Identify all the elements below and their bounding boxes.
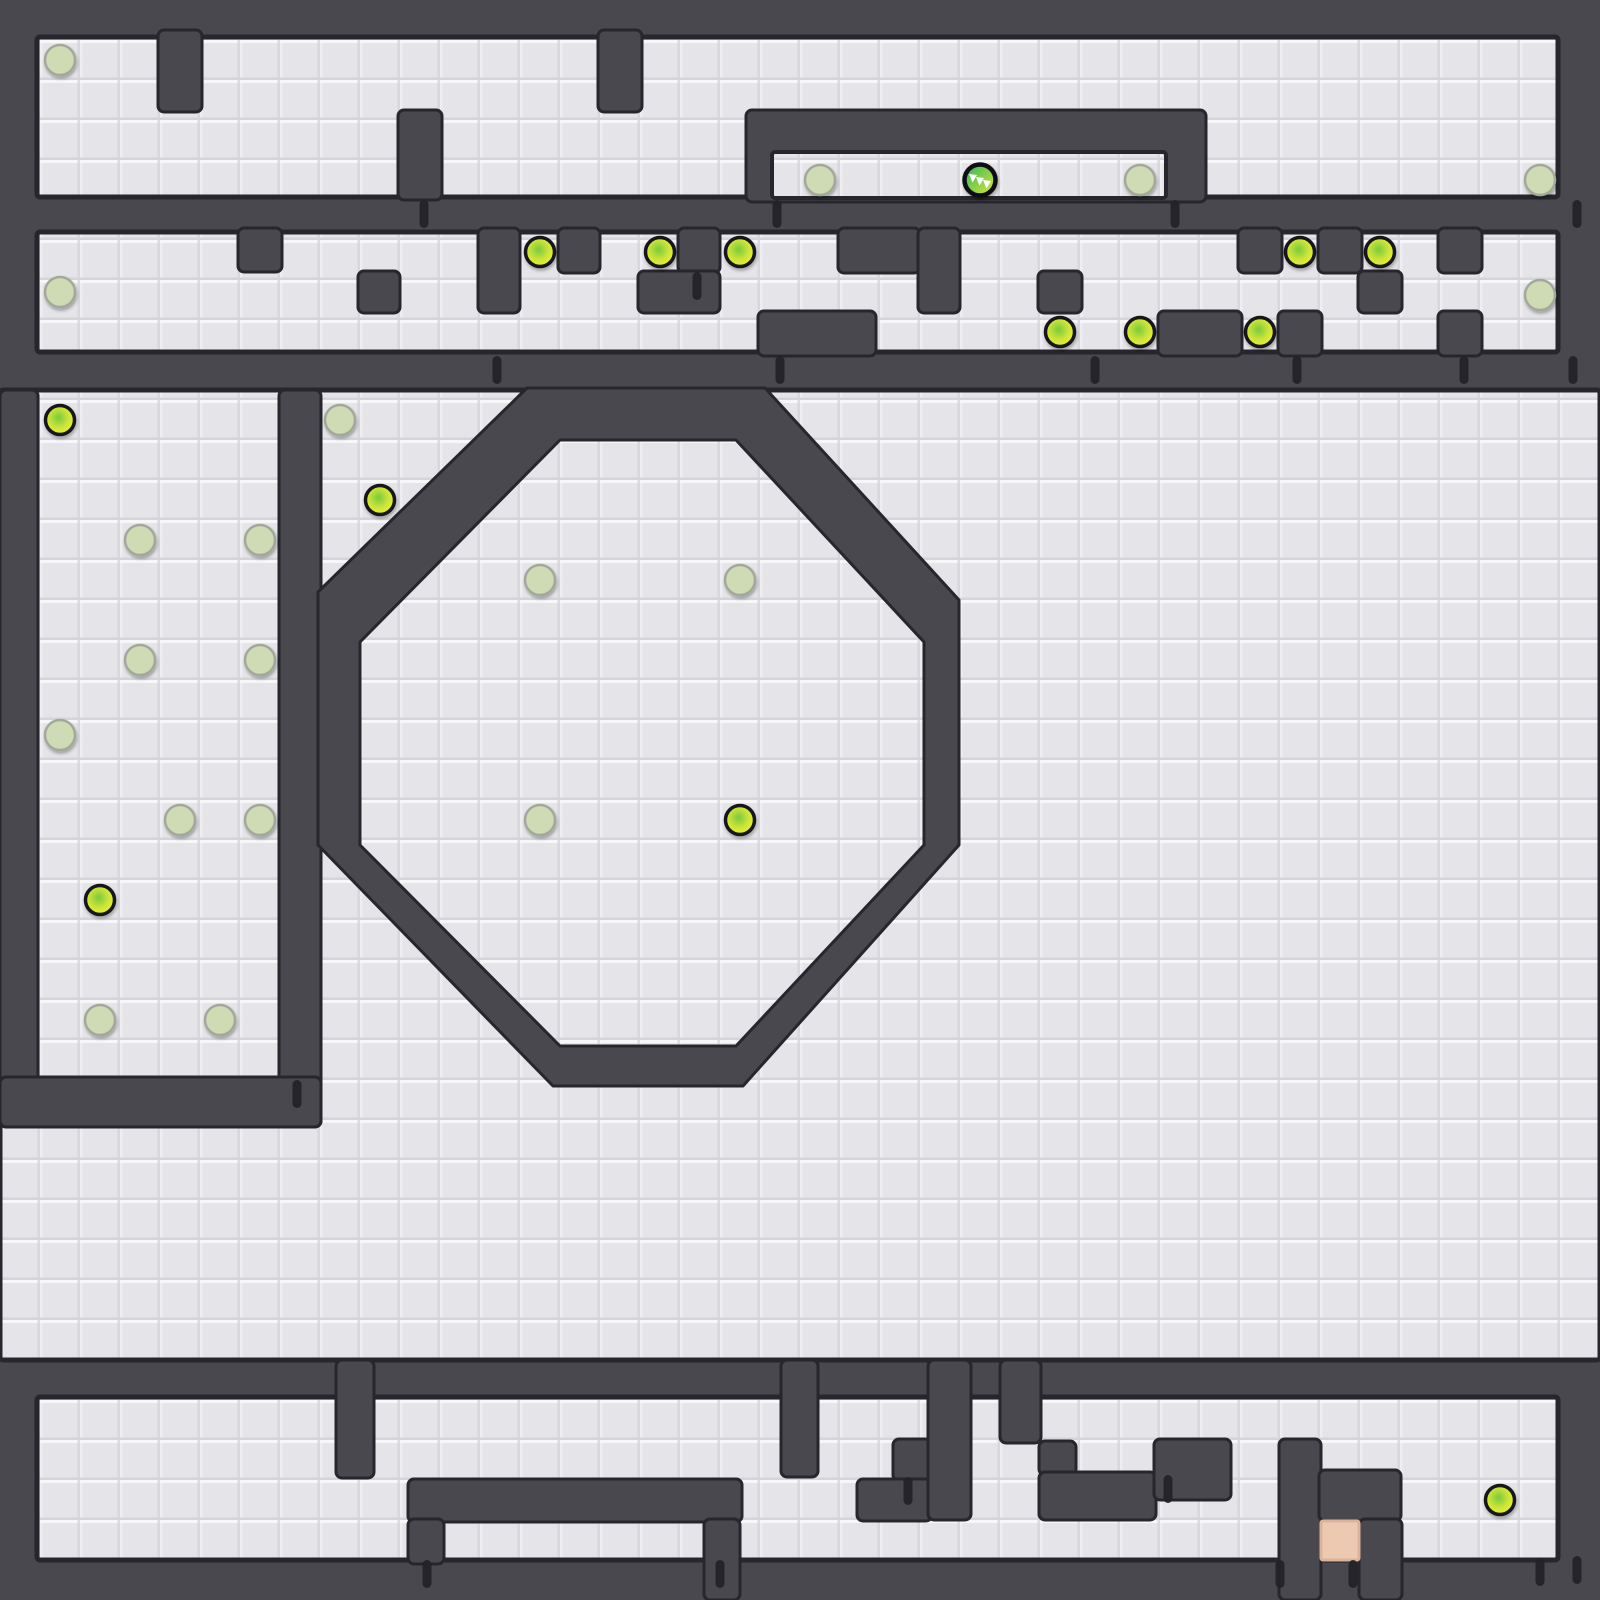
food-pellet	[726, 806, 755, 835]
inactive-pellet	[45, 720, 75, 750]
wall-block	[1359, 1519, 1402, 1600]
inactive-pellet	[325, 405, 355, 435]
wall-block	[857, 1479, 932, 1521]
inactive-pellet	[525, 805, 555, 835]
wall-block	[1158, 311, 1242, 356]
wall-block	[928, 1360, 971, 1520]
inactive-pellet	[125, 645, 155, 675]
wall-block	[336, 1360, 374, 1478]
door-peg	[776, 356, 785, 384]
door-peg	[1293, 356, 1302, 384]
food-pellet	[1486, 1486, 1515, 1515]
wall-block	[1438, 311, 1482, 356]
wall-block	[478, 228, 520, 313]
inactive-pellet	[1525, 280, 1555, 310]
door-peg	[1573, 1556, 1582, 1584]
inactive-pellet	[1525, 165, 1555, 195]
wall-block	[158, 30, 202, 112]
inactive-pellet	[165, 805, 195, 835]
door-peg	[423, 1560, 432, 1588]
door-peg	[493, 356, 502, 384]
wall-block	[238, 228, 282, 272]
wall-block	[1039, 1472, 1156, 1520]
exit-tile	[1321, 1521, 1359, 1560]
wall-block	[1000, 1360, 1041, 1443]
wall-block	[1038, 271, 1082, 313]
door-peg	[1349, 1560, 1358, 1588]
door-peg	[1276, 1560, 1285, 1588]
wall-block	[1318, 228, 1362, 273]
wall-block	[893, 1439, 931, 1481]
inactive-pellet	[725, 565, 755, 595]
door-peg	[773, 200, 782, 228]
food-pellet	[86, 886, 115, 915]
door-peg	[1536, 1558, 1545, 1586]
food-pellet	[726, 238, 755, 267]
door-peg	[904, 1477, 913, 1505]
wall-block	[1438, 228, 1482, 273]
wall-block	[1358, 271, 1402, 313]
wall-block	[558, 228, 600, 273]
wall-block	[678, 228, 720, 273]
wall-block	[408, 1479, 742, 1522]
door-peg	[1460, 356, 1469, 384]
food-pellet	[366, 486, 395, 515]
door-peg	[1171, 200, 1180, 228]
door-peg	[1164, 1475, 1173, 1503]
inactive-pellet	[525, 565, 555, 595]
food-pellet	[526, 238, 555, 267]
inactive-pellet	[125, 525, 155, 555]
door-peg	[716, 1560, 725, 1588]
wall-block	[398, 110, 442, 200]
door-peg	[420, 200, 429, 228]
inactive-pellet	[245, 525, 275, 555]
wall-block	[704, 1519, 740, 1600]
floor-region	[0, 390, 1600, 1360]
wall-block	[781, 1360, 818, 1477]
inactive-pellet	[85, 1005, 115, 1035]
wall-block	[598, 30, 642, 112]
food-pellet	[1246, 318, 1275, 347]
wall-block	[758, 311, 876, 356]
game-viewport	[0, 0, 1600, 1600]
inactive-pellet	[1125, 165, 1155, 195]
food-pellet	[646, 238, 675, 267]
snake-head	[965, 165, 996, 196]
food-pellet	[1046, 318, 1075, 347]
food-pellet	[1286, 238, 1315, 267]
wall-block	[1238, 228, 1282, 273]
wall-block	[838, 228, 920, 273]
food-pellet	[46, 406, 75, 435]
wall-block	[358, 271, 400, 313]
food-pellet	[1366, 238, 1395, 267]
wall-block	[918, 228, 960, 313]
door-peg	[1573, 200, 1582, 228]
wall-block	[0, 390, 38, 1127]
inactive-pellet	[205, 1005, 235, 1035]
food-pellet	[1126, 318, 1155, 347]
wall-block	[1278, 311, 1322, 356]
door-peg	[293, 1080, 302, 1108]
wall-block	[638, 271, 720, 313]
inactive-pellet	[45, 45, 75, 75]
inactive-pellet	[45, 277, 75, 307]
door-peg	[1091, 356, 1100, 384]
inactive-pellet	[245, 805, 275, 835]
wall-block	[279, 390, 321, 1127]
door-peg	[693, 272, 702, 300]
inactive-pellet	[805, 165, 835, 195]
game-board[interactable]	[0, 0, 1600, 1600]
wall-block	[1279, 1439, 1321, 1600]
wall-block	[1039, 1441, 1076, 1475]
door-peg	[1569, 356, 1578, 384]
wall-block	[1319, 1470, 1401, 1521]
wall-block	[0, 1077, 321, 1127]
inactive-pellet	[245, 645, 275, 675]
wall-block	[408, 1519, 444, 1564]
